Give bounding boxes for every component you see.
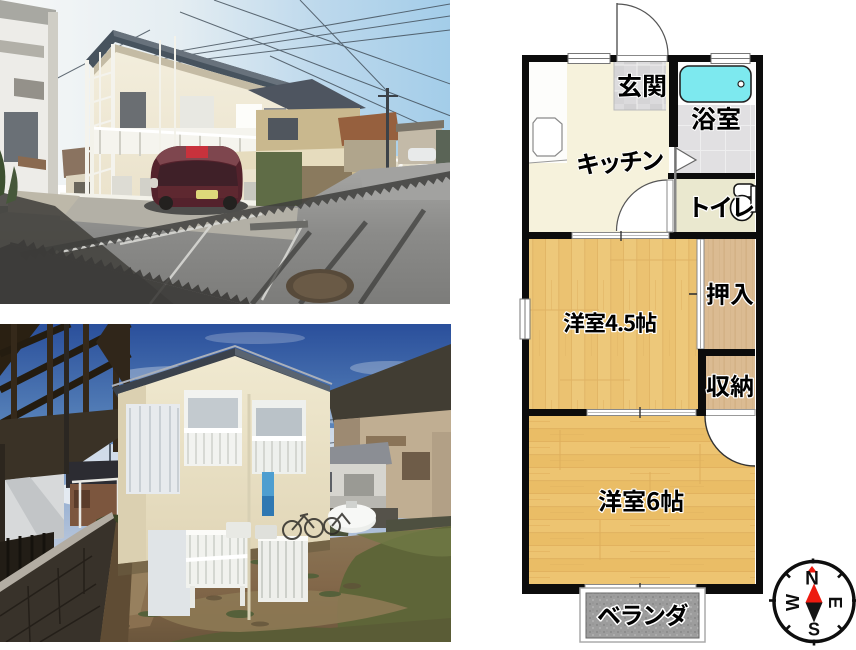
- svg-text:W: W: [783, 594, 803, 611]
- svg-text:N: N: [805, 569, 819, 590]
- svg-text:S: S: [808, 620, 820, 640]
- svg-text:E: E: [825, 596, 845, 608]
